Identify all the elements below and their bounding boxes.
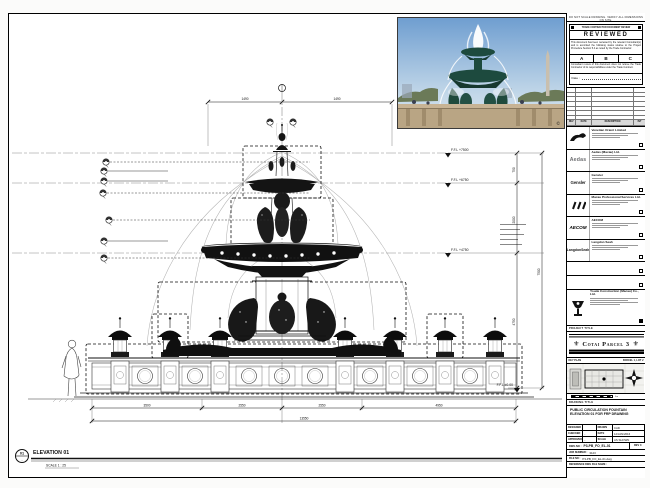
svg-text:F.F.L +7500: F.F.L +7500 xyxy=(451,148,469,152)
key-plan: KEY PLAN PARCEL 1, LOT 2 xyxy=(567,358,645,394)
svg-text:F.F.L ±0.00: F.F.L ±0.00 xyxy=(497,383,514,387)
svg-text:1490: 1490 xyxy=(333,97,340,101)
date-line[interactable] xyxy=(582,76,641,80)
revision-table: REV DATE DESCRIPTION INT xyxy=(567,88,645,127)
review-stamp: TRADE CONTRACTOR DOCUMENT REVIEW REVIEWE… xyxy=(567,22,645,88)
svg-text:-: - xyxy=(21,459,22,463)
file-number: P3-PB_FO_EL-01.dwg xyxy=(582,457,611,461)
stamp-date-row: Date : xyxy=(570,74,642,81)
stamp-header-block-right xyxy=(638,26,641,29)
svg-text:01: 01 xyxy=(20,452,24,456)
consultant-checkbox[interactable] xyxy=(639,233,643,237)
svg-text:750: 750 xyxy=(512,167,516,173)
stamp-title: REVIEWED xyxy=(570,31,642,40)
status-option-a[interactable]: A xyxy=(570,55,594,62)
mps-logo xyxy=(567,195,590,217)
scale-bar xyxy=(571,395,613,397)
consultant-box-mps: Macau Professional Services Ltd. xyxy=(567,195,645,218)
consultant-box-empty-1 xyxy=(567,262,645,276)
svg-text:ELEVATION 01: ELEVATION 01 xyxy=(33,450,69,456)
consultant-checkbox[interactable] xyxy=(639,188,643,192)
svg-text:13550: 13550 xyxy=(300,417,309,421)
contractor-checkbox[interactable] xyxy=(639,319,643,323)
reference-photo: © xyxy=(397,17,565,129)
drawing-title: PUBLIC CIRCULATION FOUNTAIN ELEVATION 01… xyxy=(567,406,645,425)
stamp-paragraph-1: This document has been reviewed by the r… xyxy=(570,40,642,55)
status-option-b[interactable]: B xyxy=(594,55,618,62)
fleur-de-lis-icon-left: ⚜ xyxy=(573,341,579,348)
svg-text:SCALE 1 : 25: SCALE 1 : 25 xyxy=(46,464,66,468)
job-number: 3123 xyxy=(589,451,595,455)
dwg-number: P3-PB_FO_EL-01 xyxy=(584,444,630,448)
svg-text:3500: 3500 xyxy=(143,404,150,408)
info-table: DESIGNED DRAWN CAD CHECKED - DATE 12/JAN… xyxy=(567,425,645,443)
consultant-checkbox[interactable] xyxy=(639,210,643,214)
top-note: DO NOT SCALE DRAWING. VERIFY ALL DIMENSI… xyxy=(567,13,645,22)
svg-text:1490: 1490 xyxy=(241,97,248,101)
fountain-photo: © xyxy=(398,18,564,128)
revision-table-header: REV DATE DESCRIPTION INT xyxy=(567,120,645,126)
svg-text:2550: 2550 xyxy=(238,404,245,408)
stamp-paragraph-2: Consultant review of this document does … xyxy=(570,63,642,75)
project-title-band: ⚜ Cotai Parcel 3 ⚜ xyxy=(567,332,645,358)
svg-text:2550: 2550 xyxy=(318,404,325,408)
svg-text:F.F.L +6750: F.F.L +6750 xyxy=(451,178,469,182)
reference-row: REFERENCE DWG FILE NAME : xyxy=(567,462,645,468)
svg-text:2000: 2000 xyxy=(512,216,516,223)
consultant-checkbox[interactable] xyxy=(639,165,643,169)
consultant-checkbox[interactable] xyxy=(639,269,643,273)
consultant-checkbox[interactable] xyxy=(639,143,643,147)
svg-text:4950: 4950 xyxy=(435,404,442,408)
stamp-status-options: A B C xyxy=(570,55,642,63)
consultant-checkbox[interactable] xyxy=(639,283,643,287)
consultant-box-aedas: Aedas Aedas (Macau) Ltd. xyxy=(567,150,645,173)
photo-balustrade xyxy=(398,100,564,128)
dwg-number-row: DWG NO : P3-PB_FO_EL-01 REV 0 xyxy=(567,443,645,450)
key-plan-parcel: PARCEL 1, LOT 2 xyxy=(623,359,644,362)
svg-text:F.F.L +4750: F.F.L +4750 xyxy=(451,248,469,252)
svg-text:4750: 4750 xyxy=(512,318,516,325)
contractor-logo xyxy=(567,290,590,325)
consultant-box-gensler: Gensler Gensler xyxy=(567,172,645,195)
revision-cell: REV 0 xyxy=(629,443,645,449)
consultant-checkbox[interactable] xyxy=(639,255,643,259)
project-title: Cotai Parcel 3 xyxy=(582,341,629,348)
consultant-box-aecom: AECOM AECOM xyxy=(567,217,645,240)
gensler-logo: Gensler xyxy=(567,172,590,194)
consultant-box-empty-2 xyxy=(567,276,645,290)
scale-bar-end-label: 5m xyxy=(615,396,618,398)
elevation-title: 01 - ELEVATION 01 SCALE 1 : 25 xyxy=(16,450,563,469)
fleur-de-lis-icon-right: ⚜ xyxy=(633,341,639,348)
consultant-box-langdon-seah: LangdonSeah Langdon Seah xyxy=(567,240,645,263)
status-option-c[interactable]: C xyxy=(619,55,642,62)
keynote-text-stack xyxy=(500,224,526,245)
langdon-seah-logo: LangdonSeah xyxy=(567,240,590,262)
stamp-header-block-left xyxy=(571,26,574,29)
aedas-logo: Aedas xyxy=(567,150,590,172)
venetian-lion-logo xyxy=(567,127,590,149)
scale-figure xyxy=(62,340,81,396)
aecom-logo: AECOM xyxy=(567,217,590,239)
consultant-box-venetian: Venetian Orient Limited xyxy=(567,127,645,150)
svg-text:7500: 7500 xyxy=(537,268,541,275)
contractor-box: Youde Construction (Macau) Co., Ltd. xyxy=(567,290,645,326)
pool-balustrade xyxy=(28,358,562,402)
title-block: DO NOT SCALE DRAWING. VERIFY ALL DIMENSI… xyxy=(566,13,645,478)
key-plan-label: KEY PLAN xyxy=(569,359,582,362)
drawing-location-marker xyxy=(602,377,605,380)
key-plan-map xyxy=(567,364,644,393)
level-cut-lines xyxy=(12,153,446,253)
